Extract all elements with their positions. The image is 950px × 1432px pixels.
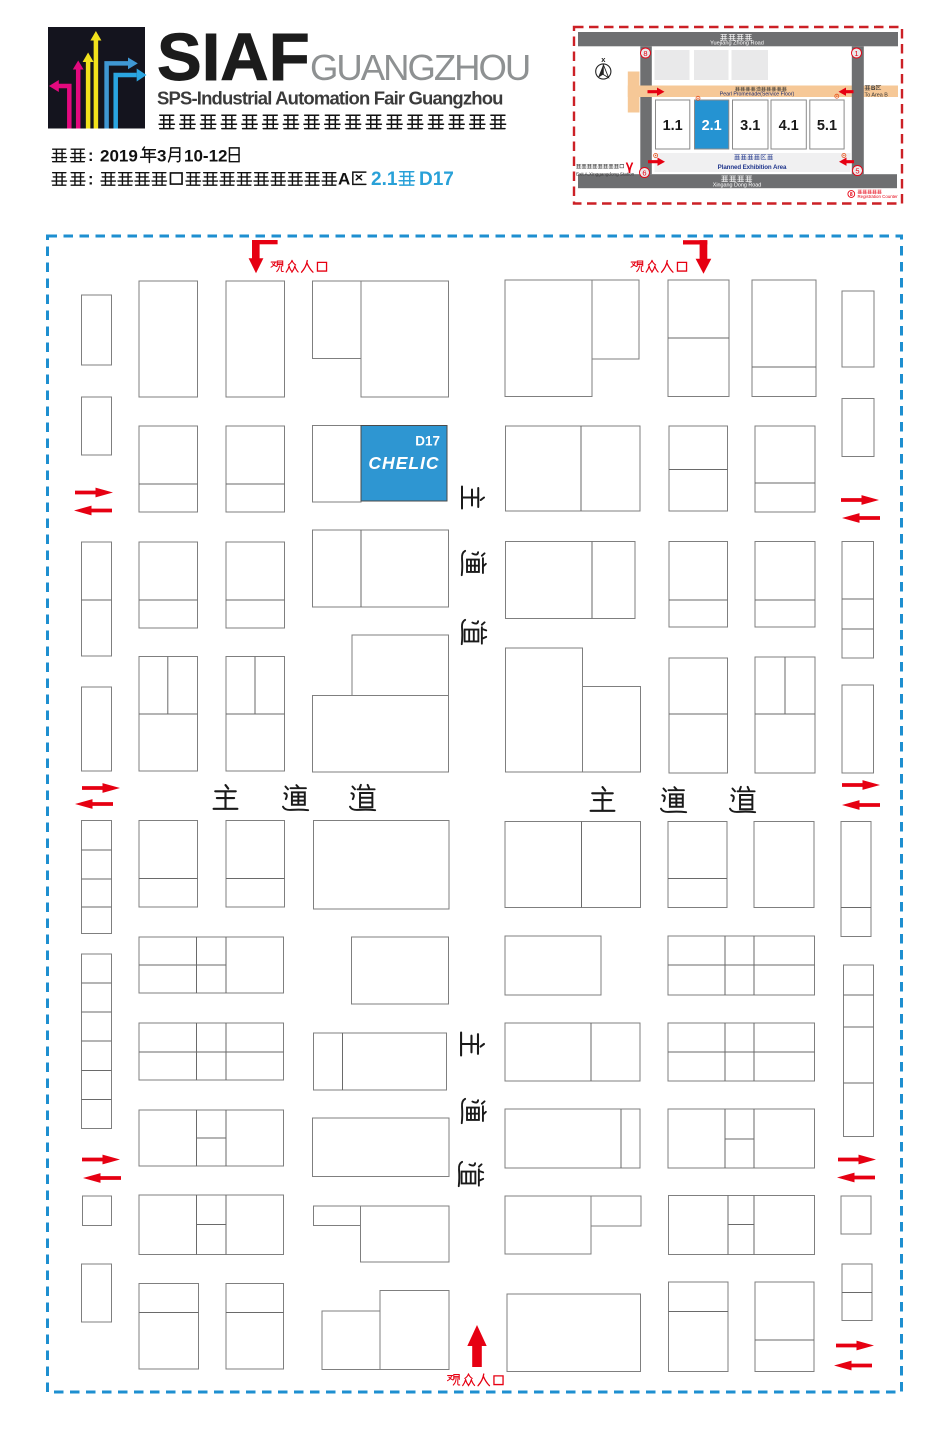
svg-text:Exit A,Xinggangdong Station: Exit A,Xinggangdong Station <box>576 172 635 177</box>
svg-text:CHELIC: CHELIC <box>368 453 439 473</box>
svg-text:A: A <box>338 170 350 189</box>
svg-text:8: 8 <box>850 192 853 198</box>
svg-text:5.1: 5.1 <box>817 118 837 134</box>
svg-text:2.1: 2.1 <box>702 118 722 134</box>
svg-text:Xingang Dong Road: Xingang Dong Road <box>713 183 762 189</box>
svg-text::: : <box>88 147 94 165</box>
svg-text:5: 5 <box>855 167 859 176</box>
svg-text:SPS-Industrial Automation Fair: SPS-Industrial Automation Fair Guangzhou <box>157 88 503 109</box>
svg-text:3.1: 3.1 <box>740 118 760 134</box>
svg-text:1: 1 <box>854 49 858 58</box>
svg-text:D17: D17 <box>419 169 454 190</box>
svg-text:6: 6 <box>642 169 646 178</box>
svg-text:D17: D17 <box>415 434 440 449</box>
svg-text:10-12: 10-12 <box>184 147 227 166</box>
svg-text:Planned Exhibition Area: Planned Exhibition Area <box>718 164 787 171</box>
svg-text:GUANGZHOU: GUANGZHOU <box>310 47 529 88</box>
svg-text:3: 3 <box>157 147 166 166</box>
svg-text:2019: 2019 <box>100 147 138 166</box>
svg-text:8: 8 <box>643 49 647 58</box>
svg-text::: : <box>88 171 94 189</box>
svg-text:SIAF: SIAF <box>157 20 310 95</box>
svg-text:Registration Counter: Registration Counter <box>858 194 899 199</box>
svg-text:Yuejiang Zhong Road: Yuejiang Zhong Road <box>710 41 764 47</box>
svg-text:2.1: 2.1 <box>371 169 398 190</box>
svg-text:Pearl Promenade(Service Floor): Pearl Promenade(Service Floor) <box>720 92 795 98</box>
svg-text:B: B <box>871 86 876 92</box>
svg-text:1.1: 1.1 <box>663 118 683 134</box>
svg-text:To Area B: To Area B <box>865 93 889 99</box>
svg-text:4.1: 4.1 <box>779 118 799 134</box>
